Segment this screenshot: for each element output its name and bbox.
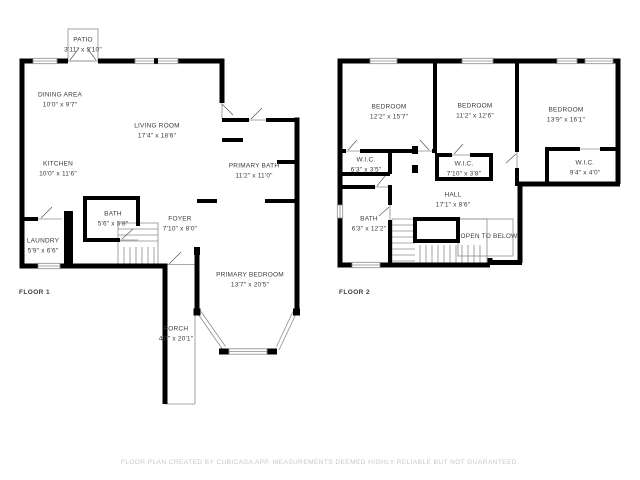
room-label-primary-bath: PRIMARY BATH 11'2" x 11'0": [229, 161, 279, 181]
room-dims: 5'6" x 5'8": [98, 219, 129, 229]
room-dims: 11'2" x 12'6": [456, 111, 494, 121]
floor2-stairwell-opening: [415, 219, 458, 241]
floor2-label: FLOOR 2: [339, 289, 370, 296]
room-name: LAUNDRY: [27, 236, 59, 246]
room-label-bedroom-1: BEDROOM 12'2" x 15'7": [370, 102, 408, 122]
room-dims: 6'3" x 3'5": [351, 165, 382, 175]
room-label-porch: PORCH 4'0" x 20'1": [159, 324, 193, 344]
room-name: FOYER: [163, 214, 197, 224]
room-name: W.I.C.: [447, 159, 481, 169]
room-name: OPEN TO BELOW: [461, 232, 518, 242]
room-label-wic-2: W.I.C. 7'10" x 3'8": [447, 159, 481, 179]
room-label-patio: PATIO 3'11" x 3'10": [64, 35, 102, 55]
room-label-bath: BATH 5'6" x 5'8": [98, 209, 129, 229]
room-label-primary-bedroom: PRIMARY BEDROOM 13'7" x 20'5": [216, 270, 284, 290]
room-name: PRIMARY BEDROOM: [216, 270, 284, 280]
room-label-laundry: LAUNDRY 5'9" x 6'6": [27, 236, 59, 256]
room-name: DINING AREA: [38, 90, 82, 100]
room-dims: 17'1" x 8'6": [436, 200, 470, 210]
room-dims: 5'9" x 6'6": [27, 246, 59, 256]
room-dims: 13'9" x 16'1": [547, 115, 585, 125]
floor2-wall-blocks: [412, 146, 418, 173]
room-name: PRIMARY BATH: [229, 161, 279, 171]
room-label-bedroom-3: BEDROOM 13'9" x 16'1": [547, 105, 585, 125]
room-dims: 6'3" x 12'2": [352, 224, 386, 234]
room-dims: 9'4" x 4'0": [570, 168, 601, 178]
room-dims: 11'2" x 11'0": [229, 171, 279, 181]
floor1-label: FLOOR 1: [19, 289, 50, 296]
room-dims: 10'0" x 9'7": [38, 100, 82, 110]
room-label-bedroom-2: BEDROOM 11'2" x 12'6": [456, 101, 494, 121]
room-dims: 7'10" x 3'8": [447, 169, 481, 179]
room-name: W.I.C.: [351, 155, 382, 165]
room-name: BATH: [352, 214, 386, 224]
footer-disclaimer: FLOOR PLAN CREATED BY CUBICASA APP. MEAS…: [121, 459, 519, 466]
room-dims: 12'2" x 15'7": [370, 112, 408, 122]
room-name: BEDROOM: [456, 101, 494, 111]
room-name: KITCHEN: [39, 159, 77, 169]
room-name: LIVING ROOM: [134, 121, 180, 131]
room-dims: 13'7" x 20'5": [216, 280, 284, 290]
floor-plan-drawing: [0, 0, 640, 480]
room-dims: 3'11" x 3'10": [64, 45, 102, 55]
room-label-dining-area: DINING AREA 10'0" x 9'7": [38, 90, 82, 110]
floor1-window-mullion: [154, 58, 158, 63]
room-name: PATIO: [64, 35, 102, 45]
room-label-living-room: LIVING ROOM 17'4" x 18'6": [134, 121, 180, 141]
room-name: BEDROOM: [370, 102, 408, 112]
room-name: BATH: [98, 209, 129, 219]
room-label-wic-1: W.I.C. 6'3" x 3'5": [351, 155, 382, 175]
room-label-wic-3: W.I.C. 9'4" x 4'0": [570, 158, 601, 178]
room-name: PORCH: [159, 324, 193, 334]
room-label-open-to-below: OPEN TO BELOW: [461, 232, 518, 242]
room-dims: 4'0" x 20'1": [159, 334, 193, 344]
room-label-foyer: FOYER 7'10" x 8'0": [163, 214, 197, 234]
floor1-door-swings: [41, 48, 262, 264]
floor-plan-canvas: PATIO 3'11" x 3'10" DINING AREA 10'0" x …: [0, 0, 640, 480]
room-name: HALL: [436, 190, 470, 200]
room-dims: 17'4" x 18'6": [134, 131, 180, 141]
room-dims: 7'10" x 8'0": [163, 224, 197, 234]
room-label-hall: HALL 17'1" x 8'6": [436, 190, 470, 210]
room-label-bath-2: BATH 6'3" x 12'2": [352, 214, 386, 234]
room-dims: 10'0" x 11'6": [39, 169, 77, 179]
room-name: W.I.C.: [570, 158, 601, 168]
room-name: BEDROOM: [547, 105, 585, 115]
room-label-kitchen: KITCHEN 10'0" x 11'6": [39, 159, 77, 179]
